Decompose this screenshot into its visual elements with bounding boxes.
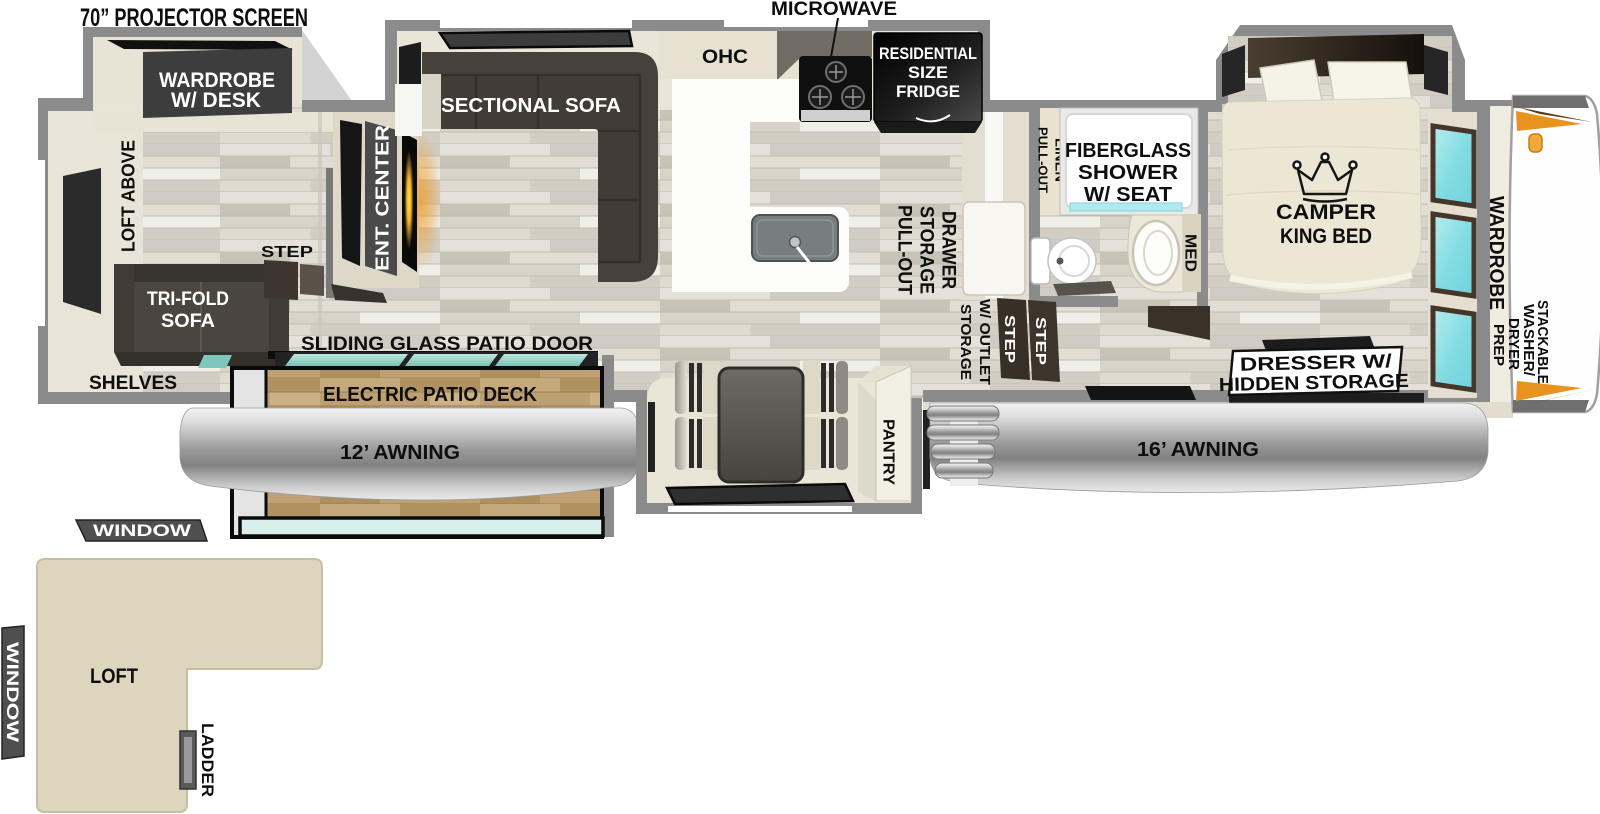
svg-text:STORAGE: STORAGE bbox=[957, 304, 974, 380]
svg-text:LOFT: LOFT bbox=[90, 665, 138, 688]
svg-text:WINDOW: WINDOW bbox=[93, 521, 192, 540]
svg-text:RESIDENTIAL: RESIDENTIAL bbox=[879, 44, 977, 63]
svg-text:PULL-OUT: PULL-OUT bbox=[893, 205, 914, 295]
svg-text:STEP: STEP bbox=[261, 244, 313, 261]
svg-text:W/ SEAT: W/ SEAT bbox=[1084, 184, 1172, 206]
svg-text:STEP: STEP bbox=[1032, 317, 1049, 365]
svg-text:DRYER: DRYER bbox=[1505, 318, 1522, 370]
svg-text:SIZE: SIZE bbox=[908, 63, 948, 82]
svg-text:W/ OUTLET: W/ OUTLET bbox=[976, 299, 993, 385]
svg-text:70” PROJECTOR SCREEN: 70” PROJECTOR SCREEN bbox=[80, 4, 308, 32]
svg-text:WINDOW: WINDOW bbox=[3, 642, 22, 743]
svg-text:CAMPER: CAMPER bbox=[1276, 201, 1376, 224]
svg-text:TRI-FOLD: TRI-FOLD bbox=[147, 289, 229, 310]
svg-text:SHOWER: SHOWER bbox=[1078, 162, 1179, 184]
svg-text:12’ AWNING: 12’ AWNING bbox=[340, 442, 460, 464]
svg-text:W/ DESK: W/ DESK bbox=[171, 89, 261, 112]
svg-text:MED: MED bbox=[1181, 234, 1198, 272]
svg-text:PULL-OUT: PULL-OUT bbox=[1035, 127, 1050, 193]
svg-text:PANTRY: PANTRY bbox=[879, 419, 896, 485]
svg-text:KING BED: KING BED bbox=[1280, 225, 1372, 248]
svg-text:FIBERGLASS: FIBERGLASS bbox=[1065, 140, 1191, 162]
svg-text:SOFA: SOFA bbox=[161, 311, 215, 332]
svg-text:STEP: STEP bbox=[1001, 315, 1018, 363]
svg-text:DRAWER: DRAWER bbox=[937, 211, 958, 289]
svg-text:ENT. CENTER: ENT. CENTER bbox=[372, 125, 392, 271]
svg-text:16’ AWNING: 16’ AWNING bbox=[1137, 439, 1259, 461]
svg-text:SHELVES: SHELVES bbox=[89, 373, 177, 394]
svg-text:WARDROBE: WARDROBE bbox=[1485, 196, 1507, 310]
svg-text:HIDDEN STORAGE: HIDDEN STORAGE bbox=[1219, 371, 1409, 396]
svg-text:STORAGE: STORAGE bbox=[915, 206, 936, 294]
svg-text:LADDER: LADDER bbox=[198, 723, 217, 797]
svg-text:ELECTRIC PATIO DECK: ELECTRIC PATIO DECK bbox=[323, 384, 538, 406]
svg-text:OHC: OHC bbox=[702, 47, 748, 68]
svg-text:PREP: PREP bbox=[1490, 324, 1507, 366]
svg-text:MICROWAVE: MICROWAVE bbox=[771, 0, 897, 20]
svg-text:LOFT ABOVE: LOFT ABOVE bbox=[118, 140, 138, 252]
svg-text:FRIDGE: FRIDGE bbox=[896, 82, 960, 101]
svg-text:SECTIONAL SOFA: SECTIONAL SOFA bbox=[441, 95, 621, 117]
